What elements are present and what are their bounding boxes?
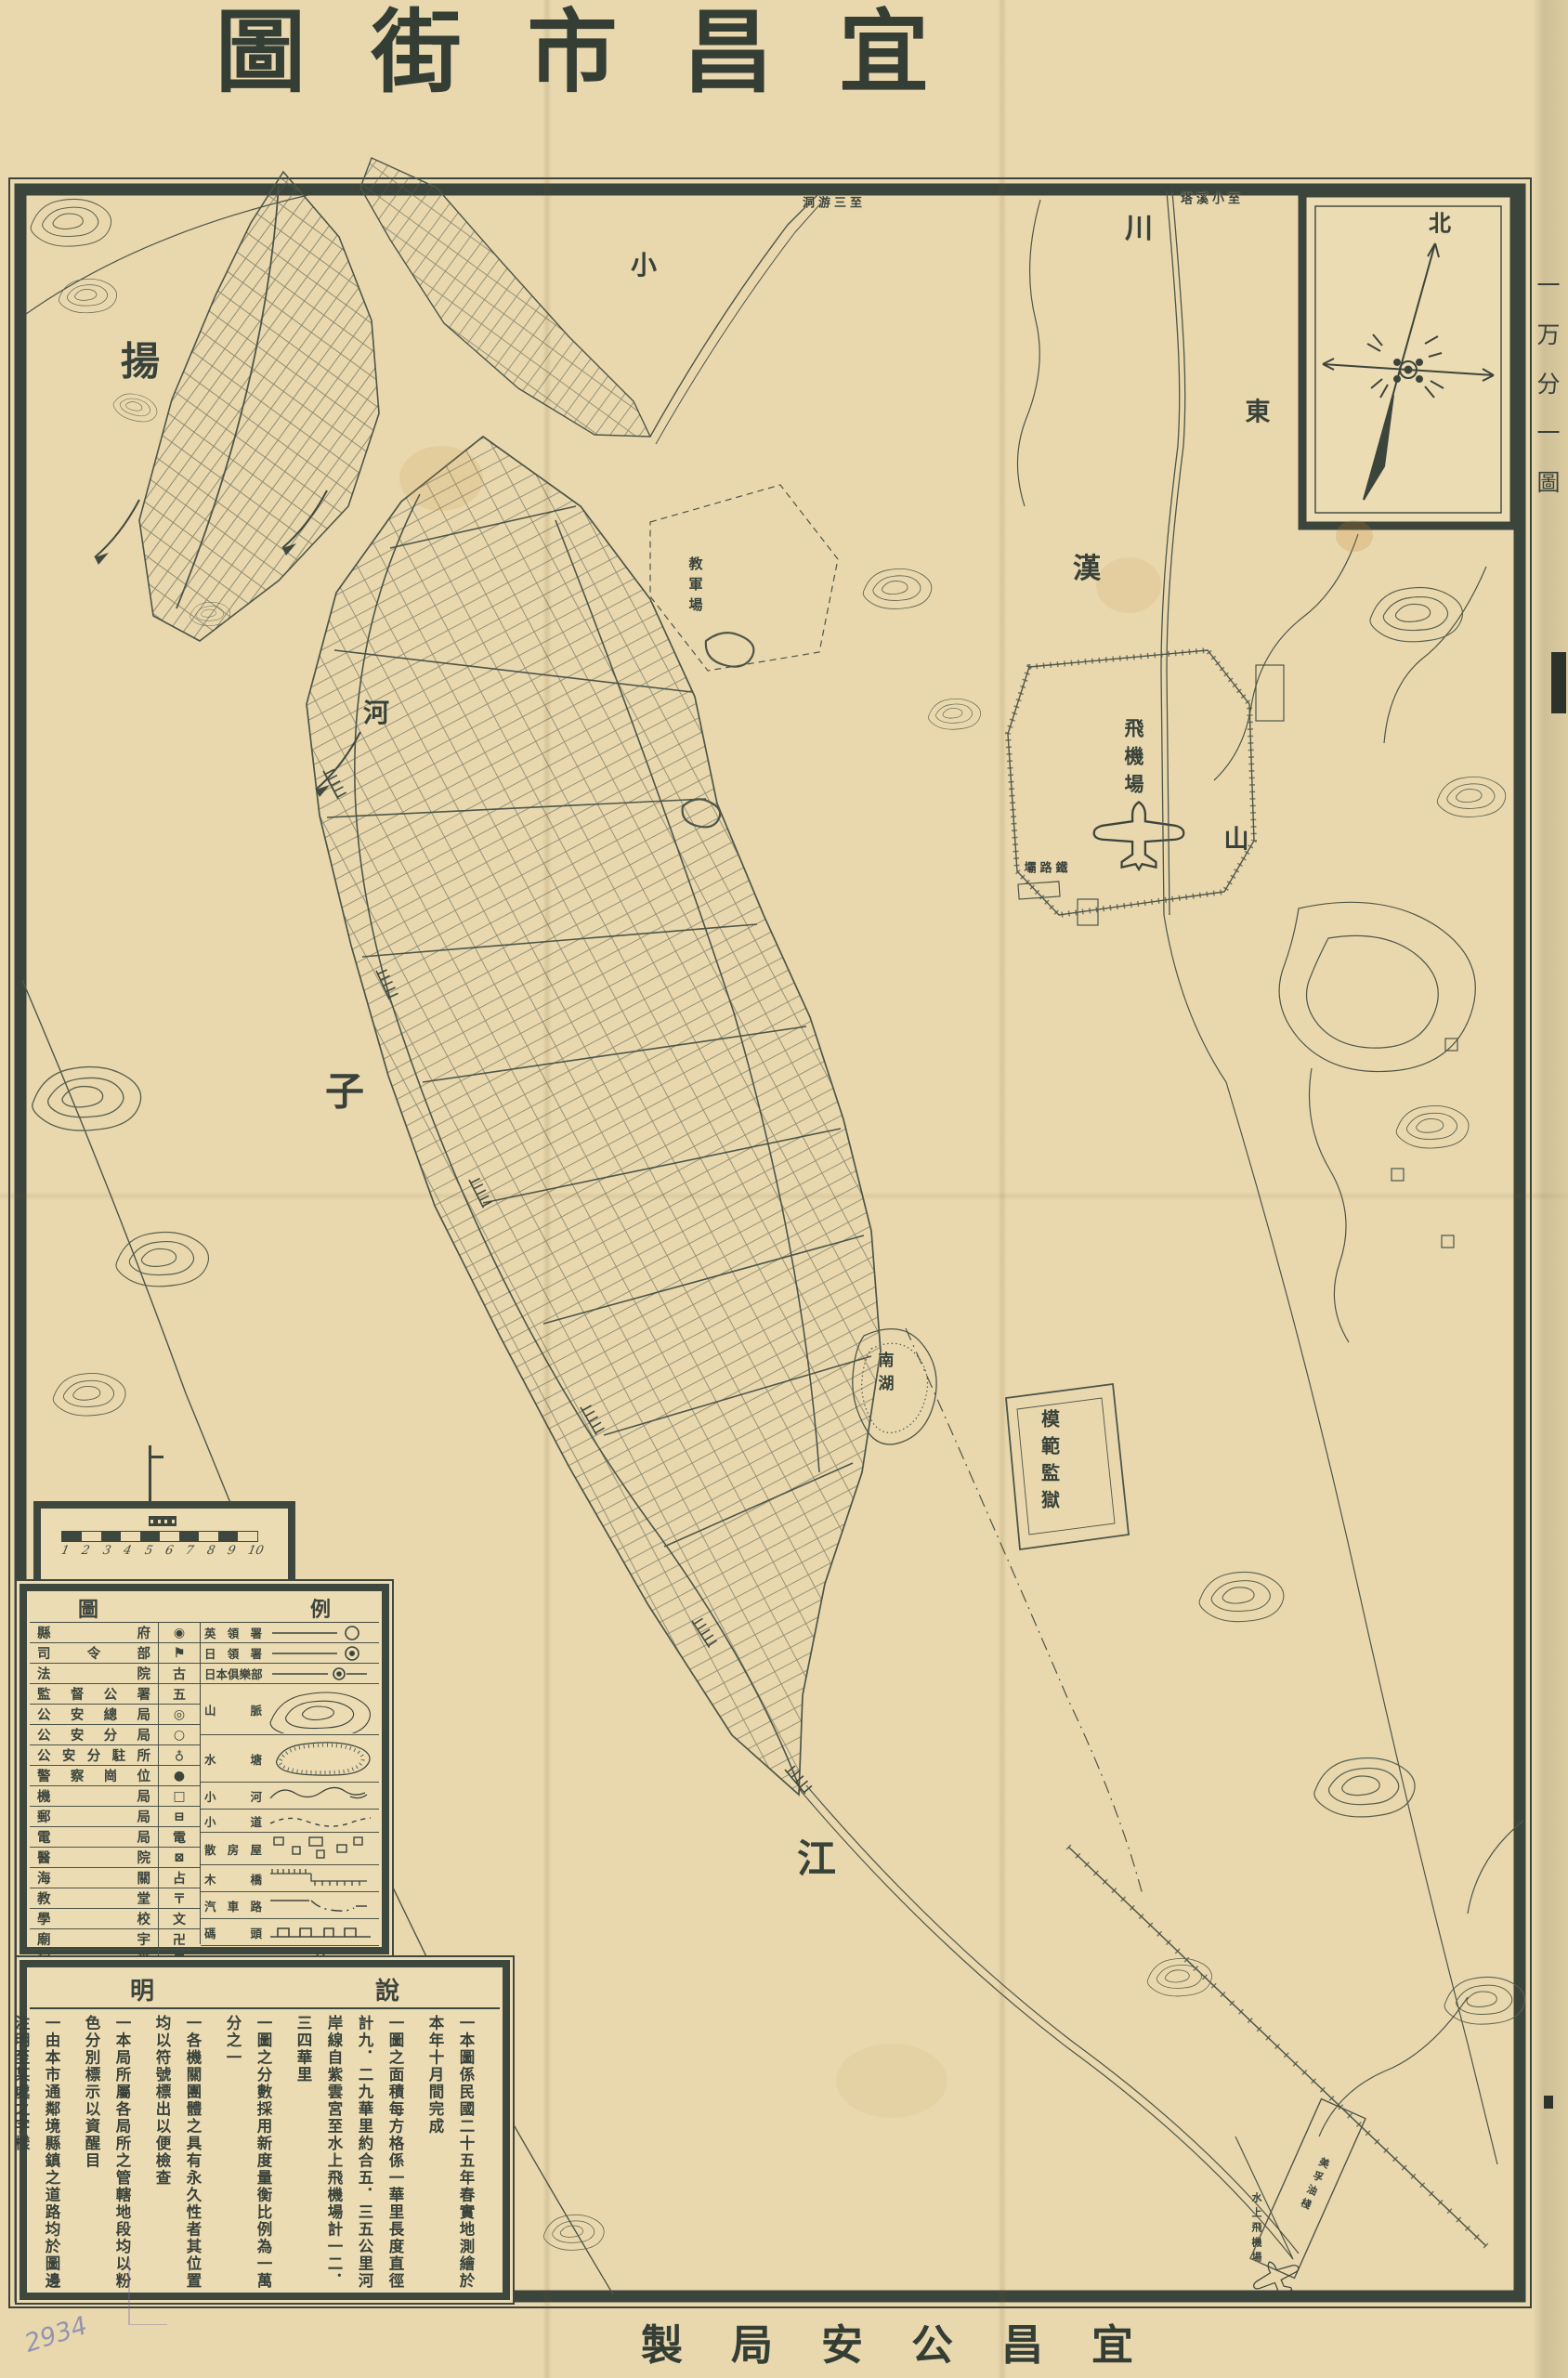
map-label-至小溪塔: 塔溪小至: [1181, 189, 1244, 207]
legend-label-char: 脈: [250, 1701, 262, 1718]
legend-feature-row: 小道: [201, 1810, 379, 1833]
legend-feature-label: 散房屋: [204, 1840, 266, 1858]
title-char: 昌: [683, 6, 773, 100]
legend-label-char: 局: [137, 1705, 150, 1724]
legend-office-label: 電局: [30, 1827, 159, 1847]
map-label-小: 小: [631, 245, 659, 282]
legend-label-char: 學: [37, 1909, 51, 1928]
legend-label-char: 路: [250, 1897, 262, 1914]
scale-tick: 1: [59, 1544, 70, 1558]
legend-office-row: 電局電: [30, 1827, 200, 1848]
legend-office-row: 教堂〒: [30, 1888, 200, 1909]
scale-segment: [62, 1532, 82, 1541]
legend-label-char: 總: [104, 1705, 118, 1724]
notes-body: 一本圖係民國二十五年春實地測繪於本年十月間完成一圖之面積每方格係一華里長度直徑計…: [35, 2015, 490, 2293]
legend-label-char: 塘: [250, 1750, 262, 1768]
legend-office-row: 警察崗位●: [30, 1766, 200, 1786]
legend-label-char: 郵: [37, 1807, 51, 1826]
legend-feature-row: 木橋: [201, 1865, 379, 1892]
line-bullseye-symbol: [266, 1645, 375, 1662]
legend-feature-row: 水塘: [201, 1735, 379, 1783]
paper-fold: [542, 0, 552, 2378]
stream-symbol: [266, 1783, 375, 1808]
legend-office-label: 公安分駐所: [30, 1745, 159, 1765]
legend-office-row: 司令部⚑: [30, 1643, 200, 1664]
title-char: 街: [372, 6, 462, 100]
legend-feature-label: 碼頭: [204, 1924, 266, 1941]
legend-symbol: ◎: [159, 1707, 200, 1722]
scale-tick: 4: [123, 1544, 133, 1558]
legend-label-char: 安: [71, 1705, 85, 1724]
legend-label-char: 縣: [37, 1623, 51, 1642]
legend-header-right: 例: [310, 1593, 331, 1623]
legend-panel: 圖 例 縣府◉司令部⚑法院古監督公署五公安總局◎公安分局○公安分駐所♁警察崗位●…: [15, 1579, 394, 1959]
legend-label-char: 部: [137, 1643, 151, 1663]
legend-label-char: 房: [228, 1840, 240, 1858]
legend-feature-label: 日本俱樂部: [204, 1665, 266, 1682]
motor-road-symbol: [266, 1893, 375, 1917]
legend-office-row: 縣府◉: [30, 1623, 200, 1643]
scale-segment: [199, 1532, 218, 1541]
scale-segment: [121, 1532, 140, 1541]
legend-feature-row: 小河: [201, 1783, 379, 1810]
legend-office-label: 監督公署: [30, 1684, 159, 1704]
legend-symbol: ♁: [159, 1748, 200, 1763]
legend-label-char: 院: [137, 1848, 151, 1867]
legend-label-char: 屋: [250, 1840, 262, 1858]
pencil-mark: [128, 2259, 167, 2325]
scale-tick: 8: [205, 1544, 216, 1558]
legend-office-row: 機局□: [30, 1786, 200, 1807]
map-label-川: 川: [1125, 205, 1155, 246]
note-item: 一本圖係民國二十五年春實地測繪於本年十月間完成: [420, 2015, 481, 2293]
legend-office-row: 法院古: [30, 1664, 200, 1684]
legend-label-char: 所: [137, 1745, 151, 1765]
legend-label-char: 部: [251, 1665, 263, 1682]
path-dashed-symbol: [266, 1810, 375, 1831]
note-item: 一圖之分數採用新度量衡比例為一萬分之一: [217, 2015, 279, 2293]
legend-symbol: 五: [159, 1685, 200, 1704]
legend-office-label: 法院: [30, 1664, 159, 1683]
legend-office-label: 司令部: [30, 1643, 159, 1663]
bridge-symbol: [266, 1866, 375, 1890]
legend-header-left: 圖: [78, 1593, 98, 1623]
legend-label-char: 頭: [250, 1924, 262, 1941]
legend-feature-label: 小道: [204, 1812, 266, 1830]
scale-segment: [218, 1532, 238, 1541]
legend-label-char: 署: [137, 1684, 150, 1704]
legend-label-char: 堂: [137, 1888, 151, 1908]
note-item: 一各機關團體之具有永久性者其位置均以符號標出以便檢查: [147, 2015, 208, 2293]
legend-label-char: 公: [37, 1725, 51, 1744]
scale-segment: [140, 1532, 160, 1541]
legend-office-label: 海關: [30, 1868, 159, 1888]
legend-office-row: 監督公署五: [30, 1684, 200, 1705]
map-label-揚: 揚: [121, 331, 162, 387]
map-title: 圖街市昌宜: [216, 6, 929, 100]
margin-scale-note: 一万分一圖: [1533, 268, 1564, 498]
map-label-教軍場: 教軍場: [686, 556, 706, 618]
scale-segment: [101, 1532, 121, 1541]
legend-offices-column: 縣府◉司令部⚑法院古監督公署五公安總局◎公安分局○公安分駐所♁警察崗位●機局□郵…: [30, 1623, 201, 1944]
legend-label-char: 河: [250, 1787, 262, 1805]
legend-office-label: 郵局: [30, 1807, 159, 1826]
legend-label-char: 關: [137, 1868, 151, 1888]
legend-label-char: 法: [37, 1664, 51, 1683]
scale-segment: [160, 1532, 179, 1541]
legend-label-char: 領: [228, 1644, 240, 1662]
legend-feature-row: 日領署: [201, 1643, 379, 1664]
legend-label-char: 府: [137, 1623, 151, 1642]
line-circle-symbol: [266, 1625, 375, 1641]
wharf-symbol: [266, 1920, 375, 1944]
legend-office-row: 醫院⊠: [30, 1848, 200, 1868]
legend-label-char: 分: [104, 1725, 118, 1744]
paper-fold: [998, 0, 1007, 2378]
legend-office-row: 郵局⊟: [30, 1807, 200, 1827]
legend-feature-row: 散房屋: [201, 1833, 379, 1865]
legend-label-char: 日: [204, 1665, 216, 1682]
scale-flag: [151, 1447, 163, 1458]
notes-header-right: 說: [375, 1972, 399, 2006]
legend-label-char: 督: [71, 1684, 85, 1704]
map-label-水上飛機場: 水上飛機場: [1248, 2192, 1263, 2267]
legend-symbol: 卍: [159, 1930, 200, 1949]
legend-label-char: 小: [204, 1787, 216, 1805]
legend-label-char: 醫: [37, 1848, 51, 1867]
legend-symbol: ◉: [159, 1626, 200, 1640]
legend-feature-label: 小河: [204, 1787, 266, 1805]
legend-office-label: 公安分局: [30, 1725, 159, 1744]
legend-label-char: 領: [228, 1624, 240, 1641]
legend-feature-label: 日領署: [204, 1644, 266, 1662]
legend-symbol: 〒: [159, 1889, 200, 1908]
scale-segment: [238, 1532, 257, 1541]
legend-label-char: 局: [137, 1725, 150, 1744]
scale-tick: 9: [226, 1544, 236, 1558]
legend-label-char: 宇: [137, 1929, 151, 1949]
margin-note-char: 分: [1536, 366, 1560, 399]
legend-label-char: 俱: [228, 1665, 240, 1682]
legend-feature-label: 木橋: [204, 1870, 266, 1888]
legend-label-char: 車: [228, 1897, 240, 1914]
legend-feature-label: 英領署: [204, 1624, 266, 1641]
margin-note-char: 圖: [1536, 464, 1560, 498]
map-label-至三游洞: 洞游三至: [803, 193, 866, 211]
legend-label-char: 位: [137, 1766, 150, 1785]
legend-label-char: 局: [137, 1807, 151, 1826]
scale-unit-tag: [149, 1516, 176, 1526]
legend-label-char: 分: [87, 1745, 101, 1765]
scale-tick: 6: [163, 1544, 174, 1558]
note-item: 一本局所屬各局所之管轄地段均以粉色分別標示以資醒目: [76, 2015, 137, 2293]
notes-header: 明 說: [30, 1970, 500, 2009]
legend-label-char: 崗: [104, 1766, 118, 1785]
legend-features-column: 英領署日領署日本俱樂部山脈水塘小河小道散房屋木橋汽車路碼頭飛機場: [201, 1623, 379, 1944]
legend-office-label: 機局: [30, 1786, 159, 1806]
legend-office-label: 公安總局: [30, 1705, 159, 1724]
map-label-南湖: 南湖: [873, 1352, 896, 1398]
legend-label-char: 司: [37, 1643, 51, 1663]
legend-office-label: 縣府: [30, 1623, 159, 1642]
legend-feature-label: 汽車路: [204, 1897, 266, 1914]
legend-symbol: 古: [159, 1665, 200, 1683]
map-label-模範監獄: 模範監獄: [1037, 1409, 1064, 1517]
map-label-子: 子: [325, 1061, 366, 1117]
legend-label-char: 道: [250, 1812, 262, 1830]
scale-tick: 2: [81, 1544, 91, 1558]
legend-label-char: 令: [87, 1643, 101, 1663]
line-target-symbol: [266, 1666, 375, 1682]
legend-office-label: 教堂: [30, 1888, 159, 1908]
scale-tick: 5: [143, 1544, 153, 1558]
legend-label-char: 小: [204, 1812, 216, 1830]
legend-label-char: 警: [37, 1766, 51, 1785]
legend-label-char: 水: [204, 1750, 216, 1768]
legend-label-char: 局: [137, 1827, 151, 1847]
pond-symbol: [266, 1736, 375, 1781]
note-item: 一圖之面積每方格係一華里長度直徑計九．二九華里約合五．三五公里河岸線自紫雲宮至水…: [288, 2015, 411, 2293]
legend-symbol: ●: [159, 1769, 200, 1783]
legend-office-row: 公安分駐所♁: [30, 1745, 200, 1766]
legend-label-char: 廟: [37, 1929, 51, 1949]
legend-label-char: 駐: [112, 1745, 126, 1765]
legend-label-char: 本: [216, 1665, 229, 1682]
legend-office-row: 廟宇卍: [30, 1929, 200, 1950]
legend-symbol: ⊠: [159, 1850, 200, 1865]
legend-symbol: 文: [159, 1910, 200, 1928]
notes-panel: 明 說 一本圖係民國二十五年春實地測繪於本年十月間完成一圖之面積每方格係一華里長…: [15, 1955, 515, 2305]
contours-symbol: [266, 1685, 375, 1733]
margin-note-char: 万: [1536, 317, 1560, 350]
legend-feature-row: 山脈: [201, 1684, 379, 1735]
legend-label-char: 海: [37, 1868, 51, 1888]
map-label-鐵路壩: 壩路鐵: [1024, 858, 1071, 876]
legend-office-label: 警察崗位: [30, 1766, 159, 1785]
legend-label-char: 監: [37, 1684, 51, 1704]
legend-symbol: 占: [159, 1869, 200, 1888]
scale-segment: [82, 1532, 101, 1541]
legend-feature-row: 英領署: [201, 1623, 379, 1643]
legend-label-char: 汽: [204, 1897, 216, 1914]
legend-feature-row: 汽車路: [201, 1892, 379, 1919]
legend-feature-label: 水塘: [204, 1750, 266, 1768]
legend-office-label: 學校: [30, 1909, 159, 1928]
map-label-漢: 漢: [1073, 545, 1103, 586]
legend-label-char: 散: [204, 1840, 216, 1858]
legend-feature-row: 碼頭: [201, 1919, 379, 1946]
legend-label-char: 碼: [204, 1924, 216, 1941]
paper-fold: [0, 1192, 1568, 1200]
legend-office-label: 醫院: [30, 1848, 159, 1867]
legend-symbol: 電: [159, 1828, 200, 1847]
fold-tab: [1551, 652, 1566, 713]
scale-tick: 7: [185, 1544, 195, 1558]
legend-office-label: 廟宇: [30, 1929, 159, 1949]
map-label-江: 江: [797, 1828, 838, 1885]
legend-label-char: 校: [137, 1909, 151, 1928]
legend-label-char: 山: [204, 1701, 216, 1718]
legend-label-char: 樂: [240, 1665, 252, 1682]
legend-feature-label: 山脈: [204, 1701, 266, 1718]
legend-label-char: 局: [137, 1786, 151, 1806]
legend-label-char: 察: [71, 1766, 85, 1785]
title-char: 圖: [216, 6, 306, 100]
legend-label-char: 機: [37, 1786, 51, 1806]
margin-note-char: 一: [1536, 415, 1560, 449]
scale-tick: 3: [101, 1544, 111, 1558]
legend-label-char: 院: [137, 1664, 151, 1683]
legend-label-char: 英: [204, 1624, 216, 1641]
publisher-caption: 製局安公昌宜: [641, 2311, 1167, 2371]
legend-office-row: 學校文: [30, 1909, 200, 1929]
legend-label-char: 安: [71, 1725, 85, 1744]
scale-bar-box: 12345678910: [33, 1501, 295, 1590]
compass-box: [1302, 193, 1514, 526]
map-label-飛機場: 飛機場: [1119, 718, 1147, 802]
legend-symbol: ○: [159, 1728, 200, 1743]
legend-label-char: 公: [37, 1705, 51, 1724]
notes-header-left: 明: [130, 1972, 154, 2006]
legend-label-char: 電: [37, 1827, 51, 1847]
legend-label-char: 公: [104, 1684, 118, 1704]
title-char: 宜: [839, 6, 929, 100]
legend-header: 圖 例: [30, 1594, 379, 1623]
scale-ticks: 12345678910: [61, 1544, 264, 1558]
legend-office-row: 公安總局◎: [30, 1705, 200, 1725]
fold-tab: [1544, 2096, 1553, 2109]
margin-note-char: 一: [1536, 268, 1560, 301]
legend-office-row: 公安分局○: [30, 1725, 200, 1745]
legend-label-char: 公: [37, 1745, 51, 1765]
legend-label-char: 日: [204, 1644, 216, 1662]
legend-symbol: ⚑: [159, 1646, 200, 1661]
legend-label-char: 木: [204, 1870, 216, 1888]
legend-office-row: 海關占: [30, 1868, 200, 1888]
legend-label-char: 安: [62, 1745, 76, 1765]
legend-label-char: 橋: [250, 1870, 262, 1888]
scale-segment: [179, 1532, 199, 1541]
note-item: 一由本市通鄰境縣鎮之道路均於圖邊注明至某處之字樣: [6, 2015, 67, 2293]
map-label-山: 山: [1224, 819, 1253, 856]
legend-feature-row: 日本俱樂部: [201, 1664, 379, 1684]
legend-label-char: 署: [250, 1624, 262, 1641]
map-label-北: 北: [1429, 205, 1455, 238]
legend-label-char: 署: [250, 1644, 262, 1662]
legend-symbol: □: [159, 1789, 200, 1804]
legend-label-char: 教: [37, 1888, 51, 1908]
scale-bar: [61, 1531, 258, 1542]
title-char: 市: [528, 6, 618, 100]
legend-symbol: ⊟: [159, 1810, 200, 1824]
map-label-河: 河: [363, 693, 391, 730]
scale-tick: 10: [247, 1544, 266, 1558]
map-label-東: 東: [1246, 392, 1274, 428]
houses-symbol: [266, 1834, 375, 1863]
